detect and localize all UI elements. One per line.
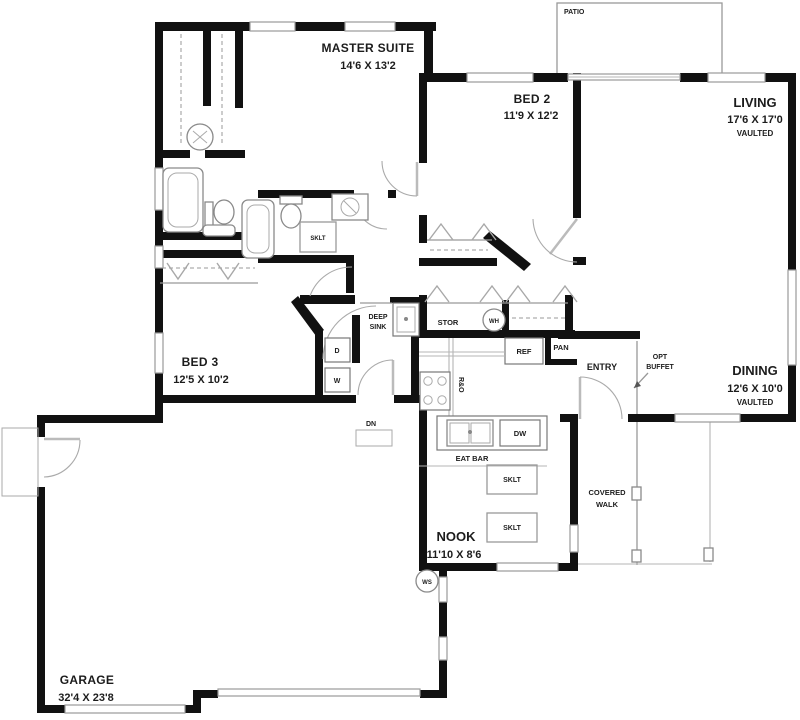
living-door-arc xyxy=(533,219,577,262)
living-side-window xyxy=(788,270,796,365)
bed3-window xyxy=(155,333,163,373)
toilet-icon xyxy=(281,204,301,228)
master-window xyxy=(345,22,395,31)
toilet-tank-icon xyxy=(205,202,213,226)
dining-label: DINING xyxy=(732,363,778,378)
bath-window xyxy=(155,168,163,210)
walk-column xyxy=(632,550,641,562)
living-window xyxy=(708,73,765,82)
bed3-dims: 12'5 X 10'2 xyxy=(173,374,228,386)
bath-window xyxy=(155,246,163,268)
covered-walk-structure xyxy=(575,341,713,565)
master-suite-label: MASTER SUITE xyxy=(322,41,415,55)
living-label: LIVING xyxy=(733,95,776,110)
skylight-label: SKLT xyxy=(503,525,521,532)
covered-walk-label-1: COVERED xyxy=(588,488,626,497)
bed2-label: BED 2 xyxy=(514,92,551,106)
walls xyxy=(37,22,796,713)
windows xyxy=(65,22,796,713)
floor-plan: PATIO xyxy=(0,0,800,720)
walk-window xyxy=(570,525,578,552)
dining-window xyxy=(675,414,740,422)
garage-label: GARAGE xyxy=(60,673,114,687)
dw-label: DW xyxy=(514,429,527,438)
range-icon xyxy=(420,372,450,410)
kitchen-fixtures xyxy=(325,303,648,592)
dn-label: DN xyxy=(366,421,376,428)
garage-rear-door xyxy=(65,705,185,713)
bed3-door-arc xyxy=(310,267,352,296)
toilet-icon xyxy=(214,200,234,224)
walk-column xyxy=(632,487,641,500)
side-stoop xyxy=(2,428,38,496)
opt-buffet-label-2: BUFFET xyxy=(646,364,674,371)
dryer-label: D xyxy=(334,348,339,355)
eat-bar-label: EAT BAR xyxy=(456,454,489,463)
bed2-window xyxy=(467,73,533,82)
living-dims: 17'6 X 17'0 xyxy=(727,114,782,126)
deep-sink-label-2: SINK xyxy=(370,324,387,331)
entry-label: ENTRY xyxy=(587,362,617,372)
front-door-arc xyxy=(580,377,622,419)
pan-label: PAN xyxy=(553,343,568,352)
wh-label: WH xyxy=(489,319,499,325)
dining-vaulted: VAULTED xyxy=(737,398,774,407)
garage-entry-door-arc xyxy=(358,360,393,395)
nook-dims: 11'10 X 8'6 xyxy=(427,549,482,561)
master-window xyxy=(250,22,295,31)
dining-dims: 12'6 X 10'0 xyxy=(727,383,782,395)
opt-buffet-label-1: OPT xyxy=(653,354,668,361)
toilet-tank-icon xyxy=(280,196,302,204)
ws-label: WS xyxy=(422,580,432,586)
skylight-label: SKLT xyxy=(503,477,521,484)
skylight-label: SKLT xyxy=(310,236,326,242)
vanity-icon xyxy=(203,225,235,236)
washer-label: W xyxy=(334,378,341,385)
garage-door xyxy=(218,689,420,696)
garage-window xyxy=(439,577,447,602)
garage-window xyxy=(439,637,447,660)
covered-walk-label-2: WALK xyxy=(596,500,619,509)
stor-label: STOR xyxy=(438,318,459,327)
master-suite-dims: 14'6 X 13'2 xyxy=(340,60,395,72)
ref-label: REF xyxy=(517,347,532,356)
bed2-door-arc xyxy=(382,161,417,196)
range-label: R&O xyxy=(457,377,464,393)
patio-area: PATIO xyxy=(557,3,722,76)
floor-plan-canvas: PATIO xyxy=(0,0,800,720)
living-vaulted: VAULTED xyxy=(737,129,774,138)
garage-side-door-arc xyxy=(44,440,80,477)
nook-window xyxy=(497,563,558,571)
deep-sink-label-1: DEEP xyxy=(368,314,387,321)
nook-label: NOOK xyxy=(437,529,477,544)
bed3-label: BED 3 xyxy=(182,355,219,369)
walk-column xyxy=(704,548,713,561)
garage-dims: 32'4 X 23'8 xyxy=(58,692,113,704)
bed2-dims: 11'9 X 12'2 xyxy=(504,110,559,122)
patio-label: PATIO xyxy=(564,9,585,16)
step-down-box xyxy=(356,430,392,446)
